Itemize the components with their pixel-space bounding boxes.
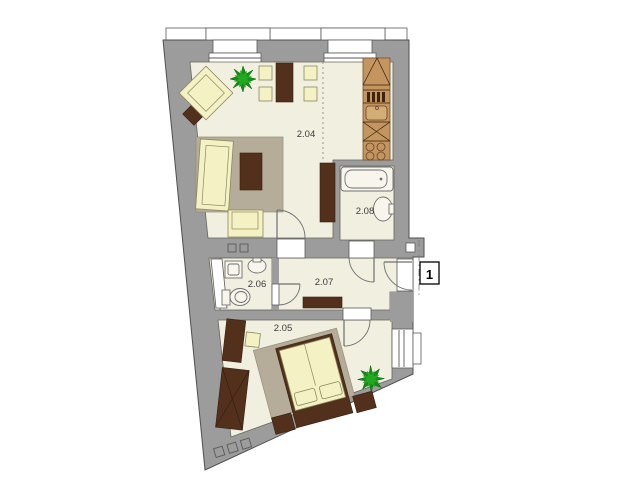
floor-plan-drawing: 1 2.04 2.05 2.06 2.07 2.08 bbox=[0, 0, 640, 480]
room-label-2-05: 2.05 bbox=[274, 323, 293, 334]
kitchen-sink bbox=[366, 106, 387, 120]
floor-plan-canvas: 1 2.04 2.05 2.06 2.07 2.08 bbox=[0, 0, 640, 480]
toilet bbox=[222, 289, 250, 306]
armchair-bottom bbox=[228, 210, 263, 237]
desk-chair bbox=[245, 332, 260, 347]
dining-chair bbox=[259, 66, 272, 80]
wall-entry-block bbox=[390, 292, 413, 322]
room-label-2-07: 2.07 bbox=[315, 277, 334, 288]
entrance-label: 1 bbox=[420, 262, 439, 284]
dining-chair bbox=[259, 87, 272, 101]
room-label-2-04: 2.04 bbox=[297, 129, 316, 140]
room-label-2-06: 2.06 bbox=[248, 279, 267, 290]
coffee-table bbox=[240, 153, 262, 190]
bathtub bbox=[341, 167, 393, 191]
dining-chair bbox=[304, 87, 317, 101]
sofa bbox=[196, 139, 234, 211]
entrance-number: 1 bbox=[426, 267, 433, 282]
dining-table bbox=[276, 63, 293, 102]
kitchen-counter bbox=[363, 58, 390, 160]
doormat bbox=[303, 297, 342, 308]
washing-machine bbox=[225, 261, 242, 278]
room-label-2-08: 2.08 bbox=[356, 206, 375, 217]
dining-chair bbox=[304, 66, 317, 80]
tv-sideboard bbox=[320, 163, 335, 222]
window-bedroom bbox=[392, 329, 421, 368]
